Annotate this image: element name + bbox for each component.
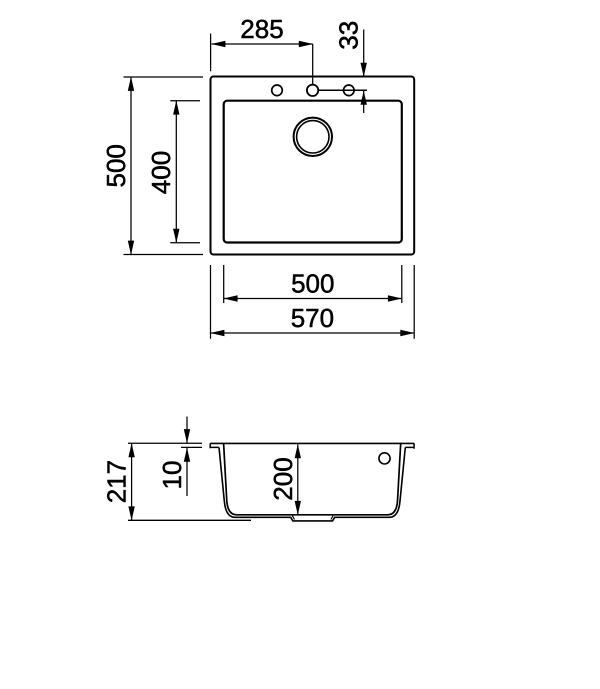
svg-text:500: 500 [291,269,334,299]
svg-text:500: 500 [101,144,131,187]
svg-text:10: 10 [157,461,187,490]
svg-text:285: 285 [240,14,283,44]
svg-text:400: 400 [146,151,176,194]
svg-text:217: 217 [101,460,131,503]
svg-text:570: 570 [291,303,334,333]
svg-text:33: 33 [334,21,364,50]
svg-text:200: 200 [268,457,298,500]
